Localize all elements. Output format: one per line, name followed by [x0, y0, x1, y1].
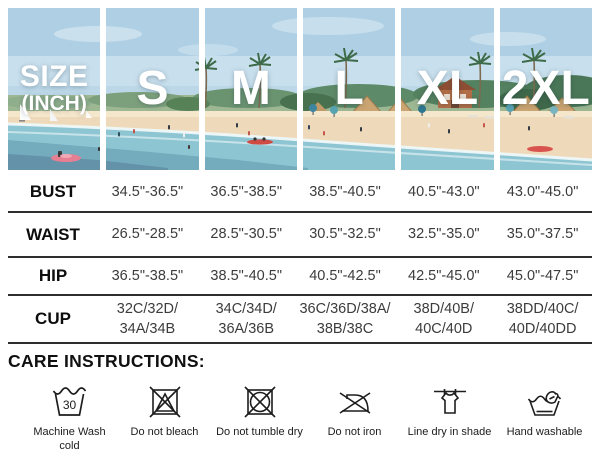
- cup-value-m: 34C/34D/ 36A/36B: [197, 299, 296, 340]
- care-items: 30 Machine Wash cold delicate cycle Do n…: [8, 383, 592, 450]
- waist-value-xl: 32.5"-35.0": [394, 224, 493, 244]
- care-section: CARE INSTRUCTIONS: 30 Machine Wash cold …: [8, 351, 592, 450]
- table-row-waist: WAIST 26.5"-28.5" 28.5"-30.5" 30.5"-32.5…: [8, 213, 592, 258]
- table-row-bust: BUST 34.5"-36.5" 36.5"-38.5" 38.5"-40.5"…: [8, 173, 592, 213]
- table-row-cup: CUP 32C/32D/ 34A/34B 34C/34D/ 36A/36B 36…: [8, 296, 592, 344]
- size-chart-image: SIZE (INCH) S M L XL 2XL BUST 34.5"-36.5…: [0, 0, 600, 450]
- care-item-machine-wash: 30 Machine Wash cold delicate cycle: [22, 383, 117, 450]
- size-label: S: [136, 65, 168, 113]
- size-header: SIZE (INCH) S M L XL 2XL: [8, 8, 592, 170]
- size-unit: (INCH): [22, 92, 87, 116]
- size-title: SIZE: [20, 62, 89, 92]
- do-not-bleach-icon: [148, 383, 182, 420]
- do-not-tumble-dry-icon: [243, 383, 277, 420]
- care-item-no-bleach: Do not bleach: [117, 383, 212, 450]
- care-label: Do not tumble dry: [216, 426, 303, 440]
- cup-value-xl: 38D/40B/ 40C/40D: [394, 299, 493, 340]
- care-label: Line dry in shade: [408, 426, 492, 440]
- svg-text:30: 30: [63, 398, 77, 412]
- cup-value-l: 36C/36D/38A/ 38B/38C: [296, 299, 395, 340]
- row-label: HIP: [8, 266, 98, 286]
- cup-value-2xl: 38DD/40C/ 40D/40DD: [493, 299, 592, 340]
- row-label: CUP: [8, 309, 98, 329]
- care-item-line-dry: Line dry in shade: [402, 383, 497, 450]
- size-label: 2XL: [502, 65, 590, 113]
- line-dry-shade-icon: [432, 383, 468, 420]
- bust-value-2xl: 43.0"-45.0": [493, 182, 592, 202]
- size-panels: SIZE (INCH) S M L XL 2XL: [8, 8, 592, 170]
- care-label: Machine Wash cold delicate cycle: [22, 426, 117, 450]
- care-label: Do not iron: [328, 426, 382, 440]
- waist-value-2xl: 35.0"-37.5": [493, 224, 592, 244]
- size-col-header-l: L: [303, 8, 395, 170]
- care-label: Do not bleach: [131, 426, 199, 440]
- bust-value-xl: 40.5"-43.0": [394, 182, 493, 202]
- care-heading: CARE INSTRUCTIONS:: [8, 351, 592, 372]
- size-col-header-m: M: [205, 8, 297, 170]
- bust-value-m: 36.5"-38.5": [197, 182, 296, 202]
- hand-wash-icon: [526, 383, 563, 420]
- size-table: BUST 34.5"-36.5" 36.5"-38.5" 38.5"-40.5"…: [8, 173, 592, 344]
- hip-value-xl: 42.5"-45.0": [394, 266, 493, 286]
- size-label: XL: [417, 65, 478, 113]
- care-item-no-tumble-dry: Do not tumble dry: [212, 383, 307, 450]
- hip-value-s: 36.5"-38.5": [98, 266, 197, 286]
- hip-value-2xl: 45.0"-47.5": [493, 266, 592, 286]
- waist-value-l: 30.5"-32.5": [296, 224, 395, 244]
- size-label: L: [334, 65, 363, 113]
- size-col-header-2xl: 2XL: [500, 8, 592, 170]
- care-item-no-iron: Do not iron: [307, 383, 402, 450]
- table-row-hip: HIP 36.5"-38.5" 38.5"-40.5" 40.5"-42.5" …: [8, 258, 592, 296]
- bust-value-l: 38.5"-40.5": [296, 182, 395, 202]
- machine-wash-30-icon: 30: [51, 383, 88, 420]
- bust-value-s: 34.5"-36.5": [98, 182, 197, 202]
- hip-value-m: 38.5"-40.5": [197, 266, 296, 286]
- row-label: WAIST: [8, 225, 98, 245]
- size-label: M: [231, 65, 271, 113]
- waist-value-m: 28.5"-30.5": [197, 224, 296, 244]
- size-col-header-inch: SIZE (INCH): [8, 8, 100, 170]
- row-label: BUST: [8, 182, 98, 202]
- care-label: Hand washable: [507, 426, 583, 440]
- cup-value-s: 32C/32D/ 34A/34B: [98, 299, 197, 340]
- care-item-hand-wash: Hand washable: [497, 383, 592, 450]
- waist-value-s: 26.5"-28.5": [98, 224, 197, 244]
- hip-value-l: 40.5"-42.5": [296, 266, 395, 286]
- do-not-iron-icon: [337, 383, 373, 420]
- size-col-header-s: S: [106, 8, 198, 170]
- size-col-header-xl: XL: [401, 8, 493, 170]
